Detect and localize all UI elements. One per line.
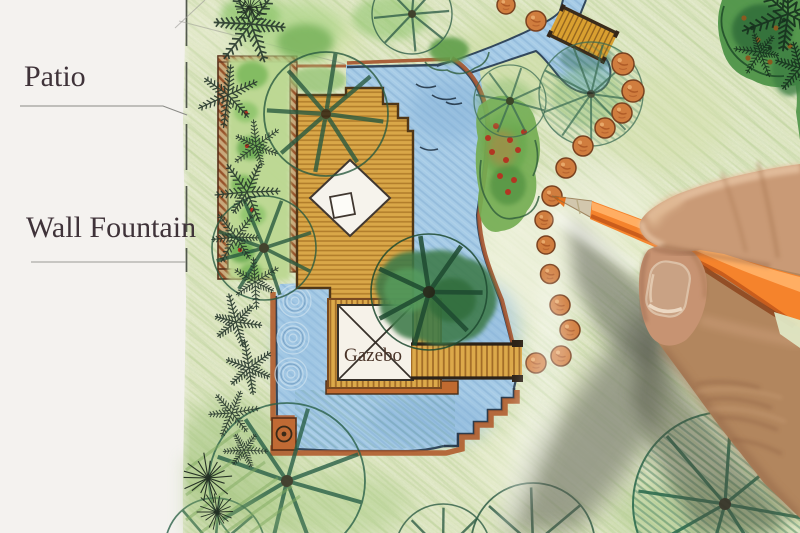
- svg-text:Wall Fountain: Wall Fountain: [26, 211, 196, 244]
- svg-text:Gazebo: Gazebo: [344, 345, 402, 366]
- svg-text:Patio: Patio: [24, 60, 86, 93]
